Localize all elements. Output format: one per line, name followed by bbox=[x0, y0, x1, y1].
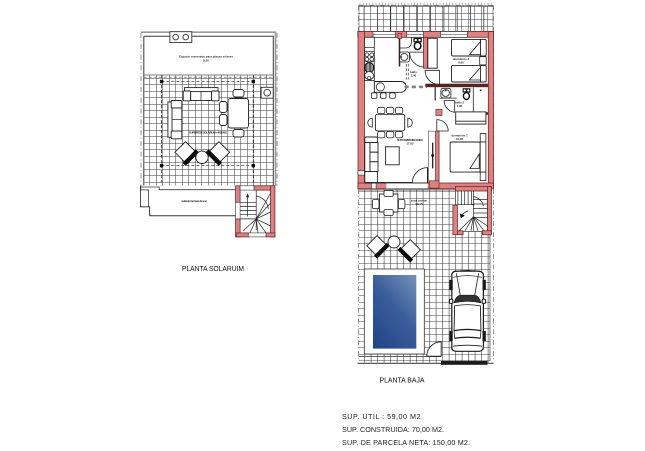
svg-text:9,00: 9,00 bbox=[203, 59, 209, 63]
svg-text:PLANTA SOLARUIM: PLANTA SOLARUIM bbox=[182, 264, 244, 273]
svg-text:SUP. UTIL : 59,00 M2.: SUP. UTIL : 59,00 M2. bbox=[342, 412, 423, 421]
svg-text:solarium terraza de uso: solarium terraza de uso bbox=[181, 199, 207, 203]
svg-text:90,15: 90,15 bbox=[416, 202, 423, 206]
svg-text:1,85: 1,85 bbox=[457, 104, 463, 108]
svg-text:SUPERFICIE SOLARIUM = 44,85 M2: SUPERFICIE SOLARIUM = 44,85 M2. bbox=[189, 131, 227, 135]
svg-text:SUP. DE PARCELA NETA: 150,00 M: SUP. DE PARCELA NETA: 150,00 M2. bbox=[342, 438, 470, 447]
svg-text:17,85: 17,85 bbox=[407, 141, 414, 145]
svg-text:9,60: 9,60 bbox=[458, 61, 464, 65]
svg-text:PLANTA BAJA: PLANTA BAJA bbox=[380, 376, 425, 385]
svg-text:SUP. CONSTRUIDA: 70,00 M2.: SUP. CONSTRUIDA: 70,00 M2. bbox=[342, 425, 444, 434]
svg-text:1,40: 1,40 bbox=[411, 74, 417, 78]
svg-text:10,35: 10,35 bbox=[456, 137, 463, 141]
